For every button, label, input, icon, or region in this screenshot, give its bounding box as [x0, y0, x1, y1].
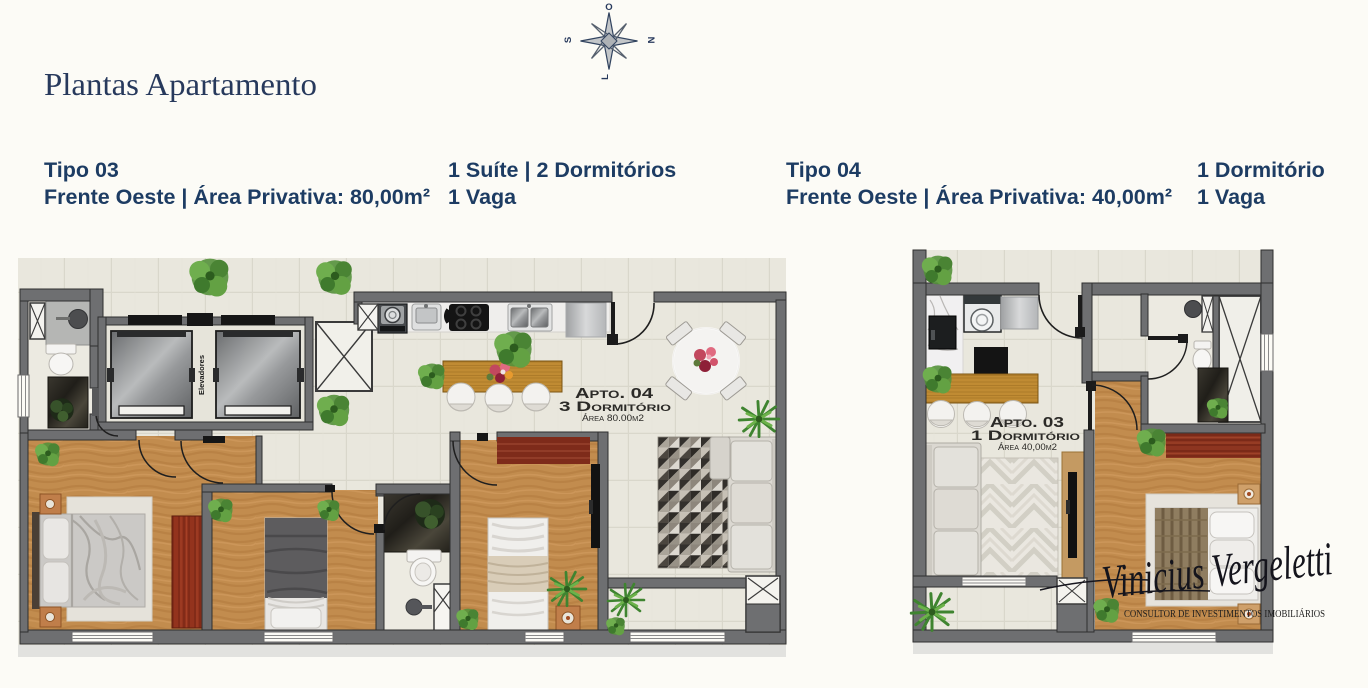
svg-text:3 Dormitório: 3 Dormitório [559, 399, 671, 414]
svg-text:Área 40,00m2: Área 40,00m2 [998, 442, 1057, 453]
svg-text:CONSULTOR DE INVESTIMENTOS IMO: CONSULTOR DE INVESTIMENTOS IMOBILIÁRIOS [1124, 608, 1325, 620]
svg-text:S: S [563, 37, 574, 43]
svg-text:1 Vaga: 1 Vaga [448, 185, 517, 209]
svg-text:1 Suíte | 2 Dormitórios: 1 Suíte | 2 Dormitórios [448, 158, 676, 182]
svg-text:Plantas Apartamento: Plantas Apartamento [44, 67, 317, 102]
svg-text:Área 80.00m2: Área 80.00m2 [582, 413, 644, 424]
svg-text:L: L [600, 74, 611, 80]
svg-text:Frente Oeste | Área Privativa:: Frente Oeste | Área Privativa: 40,00m² [786, 184, 1172, 209]
svg-text:Elevadores: Elevadores [197, 355, 206, 395]
svg-text:Tipo 03: Tipo 03 [44, 158, 119, 182]
svg-text:1 Vaga: 1 Vaga [1197, 185, 1266, 209]
svg-text:Tipo 04: Tipo 04 [786, 158, 861, 182]
svg-text:Frente Oeste | Área Privativa:: Frente Oeste | Área Privativa: 80,00m² [44, 184, 430, 209]
svg-text:1 Dormitório: 1 Dormitório [1197, 158, 1325, 182]
svg-text:O: O [605, 2, 612, 13]
svg-text:N: N [645, 37, 656, 44]
svg-text:1 Dormitório: 1 Dormitório [971, 428, 1080, 443]
